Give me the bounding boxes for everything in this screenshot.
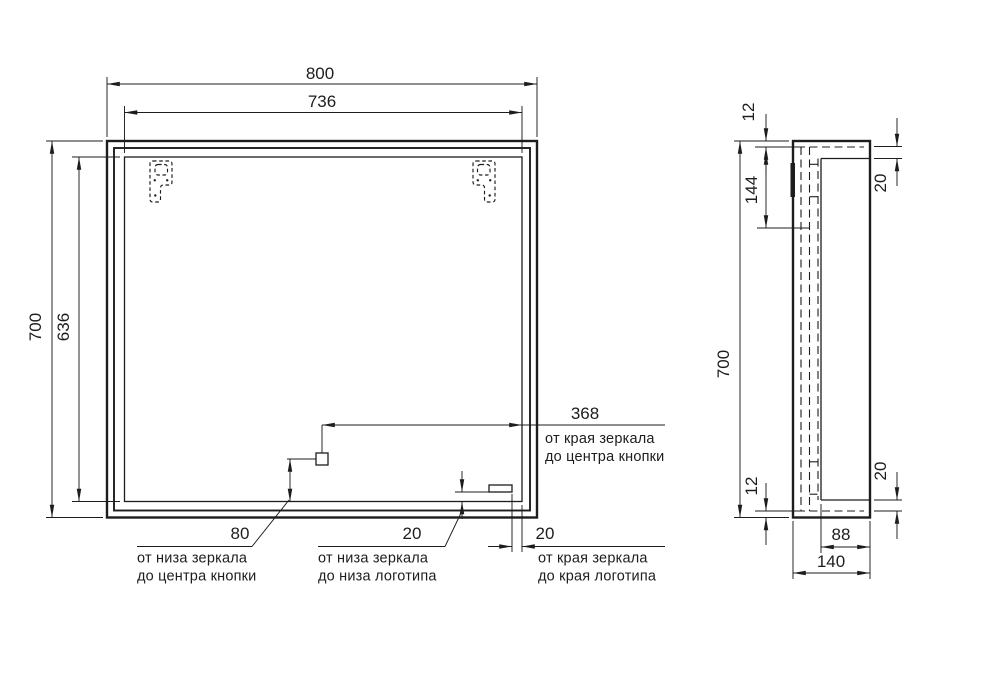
side-hidden-lines <box>797 147 864 511</box>
dim-bottom-to-button: 80 <box>231 524 250 543</box>
note-line: до центра кнопки <box>137 569 256 585</box>
side-outer-profile <box>793 141 870 518</box>
note-edge-to-logo: от края зеркала до края логотипа <box>538 551 657 585</box>
note-bottom-to-button: от низа зеркала до центра кнопки <box>137 551 256 585</box>
bracket-left <box>150 161 172 202</box>
note-line: от низа зеркала <box>318 551 429 567</box>
dim-front-width: 800 <box>306 64 334 83</box>
dim-side-top-gap: 12 <box>739 103 758 122</box>
note-line: от края зеркала <box>538 551 648 567</box>
dim-front-height: 700 <box>26 313 45 341</box>
mirror-glass-edge <box>125 157 523 502</box>
dim-side-height: 700 <box>714 350 733 378</box>
dim-edge-to-logo: 20 <box>536 524 555 543</box>
front-dimension-lines <box>52 84 665 547</box>
dim-front-height-inner: 636 <box>54 313 73 341</box>
side-view: 700 12 144 20 12 20 88 140 <box>714 103 902 579</box>
note-line: до центра кнопки <box>545 449 664 465</box>
power-button-mark <box>316 453 328 465</box>
note-line: до края логотипа <box>538 569 657 585</box>
note-line: от края зеркала <box>545 431 655 447</box>
mirror-dimension-drawing: 800 736 700 636 368 80 20 20 от края зер… <box>0 0 1000 686</box>
note-line: от низа зеркала <box>137 551 248 567</box>
dim-front-width-inner: 736 <box>308 92 336 111</box>
dim-side-bracket-span: 144 <box>742 176 761 204</box>
technical-drawing-canvas: 800 736 700 636 368 80 20 20 от края зер… <box>0 0 1000 686</box>
dim-bottom-to-logo: 20 <box>403 524 422 543</box>
mirror-mid-frame <box>114 148 530 511</box>
dim-side-outer-depth: 140 <box>817 552 845 571</box>
dim-side-bottom-gap: 12 <box>742 477 761 496</box>
note-bottom-to-logo: от низа зеркала до низа логотипа <box>318 551 437 585</box>
note-edge-to-button: от края зеркала до центра кнопки <box>545 431 664 465</box>
mirror-outer-frame <box>107 141 537 518</box>
bracket-right <box>473 161 495 202</box>
side-inner-body <box>821 159 870 501</box>
dim-side-top-inset: 20 <box>871 174 890 193</box>
dim-side-inner-depth: 88 <box>832 525 851 544</box>
dim-edge-to-button: 368 <box>571 404 599 423</box>
dim-side-bottom-inset: 20 <box>871 462 890 481</box>
logo-mark <box>489 485 512 492</box>
front-view: 800 736 700 636 368 80 20 20 от края зер… <box>26 64 665 585</box>
bracket-left-slot <box>155 165 168 176</box>
note-line: до низа логотипа <box>318 569 437 585</box>
side-bracket-profile <box>791 163 796 197</box>
bracket-right-slot <box>478 165 491 176</box>
